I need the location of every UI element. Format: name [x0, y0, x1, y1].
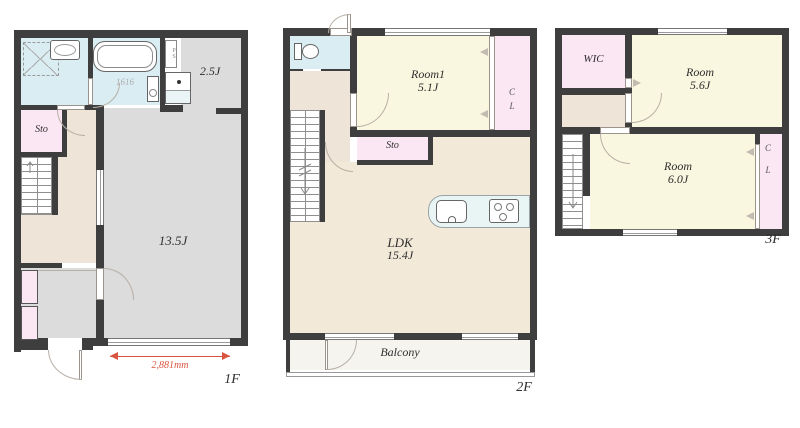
wall [14, 263, 62, 268]
wall [782, 28, 789, 236]
floor-3-plan: WIC Room 5.6J Room 6.0J C L 3F [555, 28, 789, 236]
wall [518, 333, 537, 340]
room-13-5j-floor [104, 108, 241, 338]
bathtub-inner-icon [97, 45, 153, 68]
room-13-5j-label: 13.5J [143, 234, 203, 248]
storage-label: Sto [21, 124, 62, 135]
wall [160, 105, 183, 112]
balcony-railing [286, 372, 535, 377]
window [325, 333, 394, 340]
toilet-bowl-icon [302, 44, 319, 59]
floor-1-plan: PS 2.5J 1616 Sto 13.5J 2 [14, 30, 248, 352]
wall [530, 340, 535, 372]
wall [96, 300, 104, 338]
dimension-line [110, 356, 230, 357]
sliding-door [489, 36, 495, 130]
burner-icon [506, 203, 514, 211]
basin-bowl-icon [54, 44, 76, 56]
window [658, 28, 727, 35]
door-leaf [350, 93, 357, 127]
wall [428, 137, 433, 165]
wic-label: WIC [562, 53, 625, 65]
ldk-floor [433, 137, 530, 162]
dimension-label: 2,881mm [110, 360, 230, 371]
sliding-door [625, 78, 632, 88]
floor-3-label: 3F [757, 232, 789, 247]
slide-triangle-icon [746, 148, 754, 156]
bathtub-icon [93, 41, 157, 72]
closet-floor [495, 36, 530, 130]
closet-label-c: C [502, 88, 522, 98]
wall [283, 28, 290, 340]
floor-plan-sheet: PS 2.5J 1616 Sto 13.5J 2 [0, 0, 800, 428]
pipe-space-label: PS [165, 43, 177, 65]
bathtub-size-label: 1616 [95, 78, 155, 88]
wall [283, 333, 325, 340]
wall [555, 88, 632, 95]
entrance-door-arc [48, 350, 82, 380]
wall [630, 127, 782, 134]
balcony-label: Balcony [360, 346, 440, 359]
wall [14, 30, 248, 38]
stairs-up-arrow-icon [23, 159, 37, 175]
entry-door-arc [328, 14, 350, 33]
wall [350, 36, 357, 93]
wall [530, 28, 537, 340]
door-leaf [96, 268, 104, 300]
closet-label-l: L [502, 102, 522, 112]
dimension-arrow-right-icon [222, 352, 230, 360]
wall [755, 134, 760, 144]
wall [216, 108, 248, 114]
faucet-icon [448, 216, 456, 223]
wall [321, 69, 350, 71]
wall [14, 105, 57, 110]
floor-1-label: 1F [216, 372, 248, 387]
wall [583, 134, 590, 196]
entry-step-line [38, 270, 96, 271]
toilet-bowl-icon [149, 89, 157, 97]
door-leaf [600, 127, 630, 134]
stove-icon [489, 199, 519, 223]
entry-closet [21, 306, 38, 340]
closet-label-l: L [761, 166, 775, 176]
stairs-down-arrow-icon [565, 152, 581, 212]
wall [286, 340, 290, 372]
slide-triangle-icon [480, 110, 488, 118]
heater-dot-icon [177, 80, 181, 84]
closet-label-c: C [761, 144, 775, 154]
slide-triangle-icon [746, 212, 754, 220]
wall [241, 30, 248, 346]
wall [394, 333, 462, 340]
kitchen-sink-icon [436, 200, 467, 223]
burner-icon [499, 213, 507, 221]
hallway-floor [562, 95, 625, 127]
wall [320, 110, 325, 222]
window [462, 333, 518, 340]
wall [52, 157, 58, 215]
room-5-6j-size-label: 5.6J [665, 79, 735, 92]
floor-2-plan: Room1 5.1J C L Sto LDK 15.4J Balcony 2F [283, 28, 537, 376]
burner-icon [494, 203, 502, 211]
wall [357, 160, 433, 165]
ldk-size-label: 15.4J [370, 249, 430, 262]
entry-closet [21, 270, 38, 304]
wall [82, 338, 93, 350]
toilet-tank-icon [294, 43, 302, 60]
wall [290, 69, 303, 71]
slide-triangle-icon [480, 48, 488, 56]
wall [283, 28, 330, 36]
sliding-door [755, 144, 760, 229]
washbasin-icon [50, 40, 80, 60]
room-6-0j-size-label: 6.0J [643, 173, 713, 186]
wall [350, 130, 530, 137]
dimension-arrow-left-icon [110, 352, 118, 360]
room-2-5j-label: 2.5J [180, 65, 240, 78]
window [96, 170, 104, 225]
door-leaf [625, 93, 632, 123]
storage-label: Sto [357, 140, 428, 151]
window [623, 229, 677, 236]
wall [352, 28, 385, 36]
slide-triangle-icon [633, 79, 641, 87]
heater-base-icon [166, 90, 190, 103]
wall [625, 35, 632, 78]
floor-2-label: 2F [509, 380, 539, 395]
window [108, 338, 230, 346]
room1-size-label: 5.1J [393, 81, 463, 94]
stairs-direction-arrow-icon [296, 146, 314, 198]
wall [555, 127, 600, 134]
wall [14, 30, 21, 352]
window [385, 28, 490, 36]
